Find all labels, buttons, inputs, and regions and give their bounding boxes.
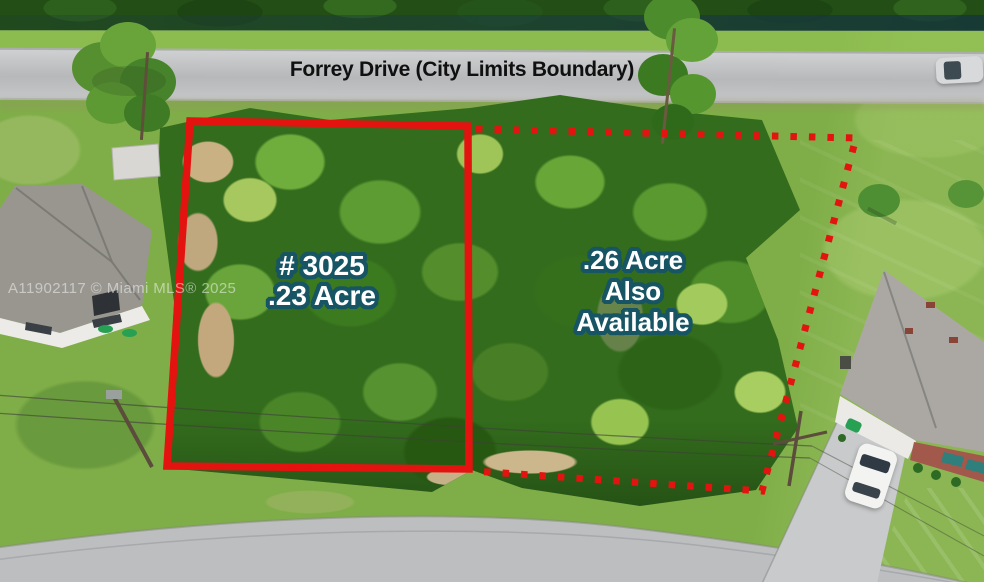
lot-secondary-label: .26 Acre Also Available xyxy=(576,245,689,338)
lot-primary-size: .23 Acre xyxy=(268,281,376,311)
road-label: Forrey Drive (City Limits Boundary) xyxy=(290,58,634,82)
lot-secondary-size: .26 Acre xyxy=(576,245,689,276)
lot-primary-label: # 3025 .23 Acre xyxy=(268,251,376,311)
lot-secondary-line3: Available xyxy=(576,307,689,338)
aerial-listing-photo: Forrey Drive (City Limits Boundary) # 30… xyxy=(0,0,984,582)
lot-secondary-line2: Also xyxy=(576,276,689,307)
mls-watermark: A11902117 © Miami MLS® 2025 xyxy=(8,280,236,297)
lot-primary-number: # 3025 xyxy=(268,251,376,281)
